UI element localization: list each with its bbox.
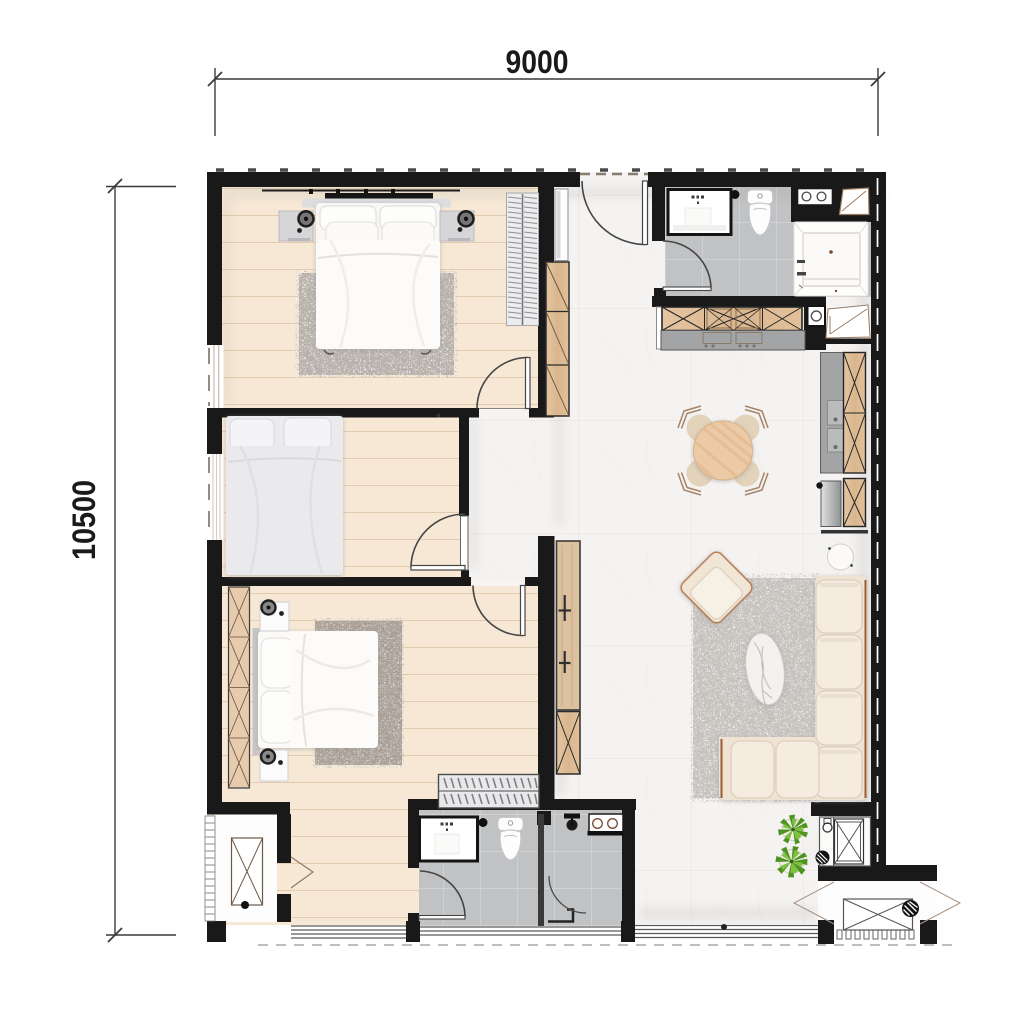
svg-text:10500: 10500 <box>66 480 102 560</box>
svg-text:9000: 9000 <box>506 44 569 80</box>
